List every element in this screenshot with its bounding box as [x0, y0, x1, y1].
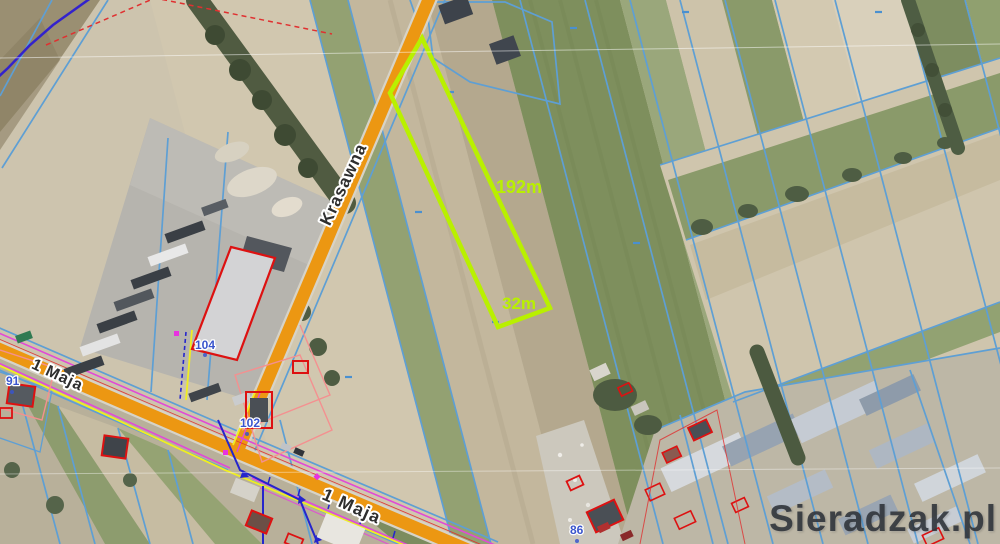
parcel-width-label: 32m	[502, 294, 536, 313]
parcel-length-label: 192m	[496, 177, 542, 197]
map-viewport[interactable]: 192m 32m 104 102 91 86 Krasawna 1 Maja 1…	[0, 0, 1000, 544]
address-102: 102	[240, 416, 260, 430]
address-104: 104	[195, 338, 215, 352]
house-outline	[102, 435, 129, 458]
aerial-map: 192m 32m 104 102 91 86 Krasawna 1 Maja 1…	[0, 0, 1000, 544]
address-91: 91	[6, 374, 20, 388]
address-86: 86	[570, 523, 584, 537]
